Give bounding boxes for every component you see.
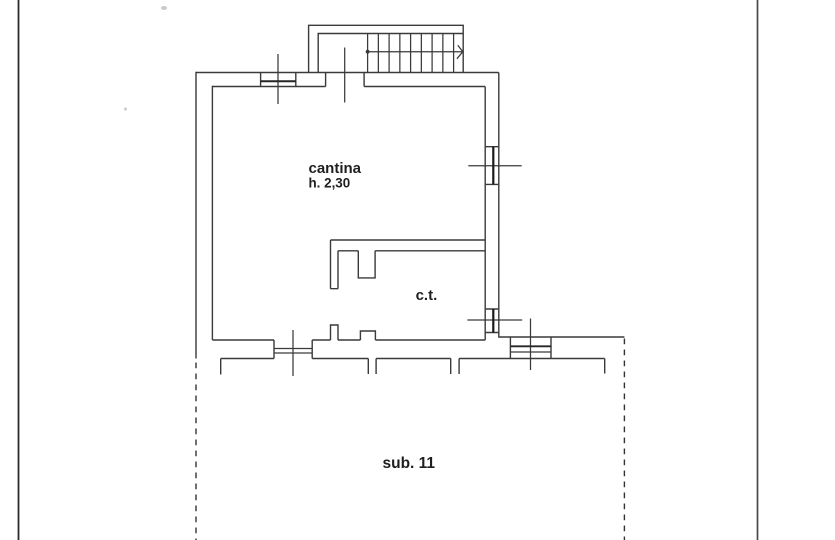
svg-text:sub. 11: sub. 11 (383, 455, 436, 472)
svg-text:c.t.: c.t. (416, 287, 438, 304)
svg-text:cantina: cantina (309, 160, 362, 177)
svg-text:h. 2,30: h. 2,30 (309, 176, 351, 191)
